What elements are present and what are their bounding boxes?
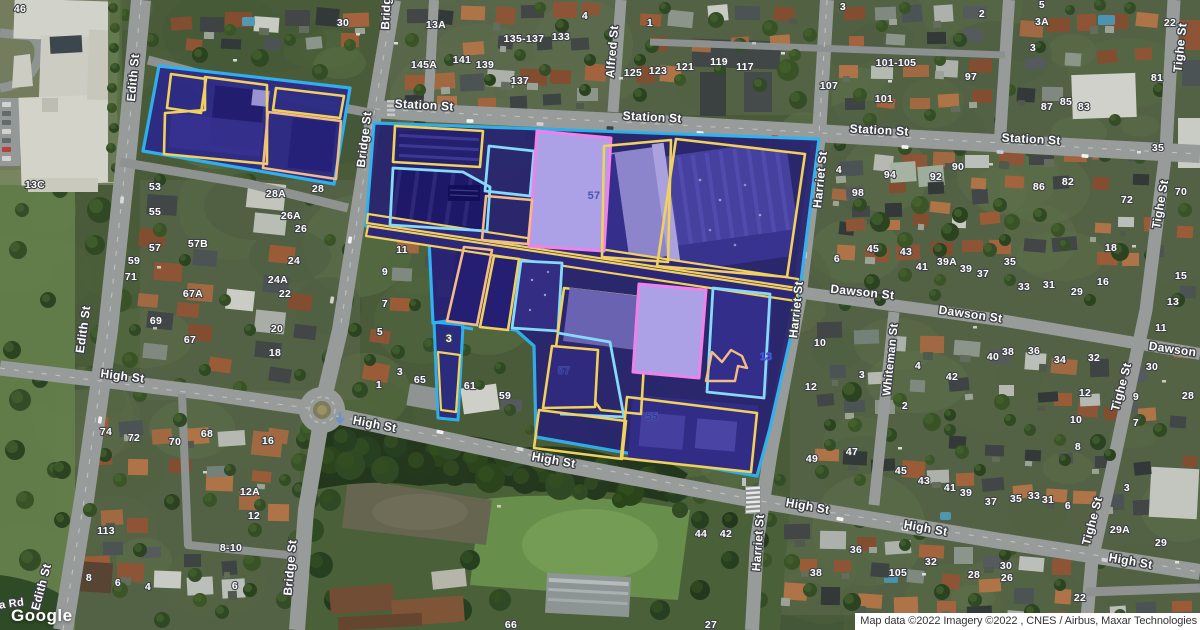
svg-text:7: 7: [382, 298, 388, 310]
svg-text:101: 101: [875, 93, 893, 105]
svg-text:44: 44: [695, 528, 707, 540]
svg-text:3: 3: [859, 369, 865, 381]
svg-text:28: 28: [1182, 390, 1194, 402]
svg-text:27: 27: [705, 619, 717, 630]
svg-text:6: 6: [1065, 500, 1071, 512]
svg-text:3: 3: [397, 366, 403, 378]
svg-text:3A: 3A: [1035, 16, 1049, 28]
svg-text:16: 16: [262, 435, 274, 447]
svg-text:2: 2: [979, 8, 985, 20]
svg-text:43: 43: [900, 246, 912, 258]
svg-text:39: 39: [960, 487, 972, 499]
svg-text:18: 18: [269, 347, 281, 359]
svg-text:92: 92: [930, 171, 942, 183]
svg-text:22: 22: [279, 288, 291, 300]
svg-text:117: 117: [736, 61, 754, 73]
svg-text:2: 2: [902, 400, 908, 412]
svg-text:53: 53: [149, 181, 161, 193]
svg-text:12: 12: [1079, 387, 1091, 399]
svg-text:6: 6: [115, 577, 121, 589]
svg-text:101-105: 101-105: [876, 57, 917, 69]
svg-text:133: 133: [552, 31, 570, 43]
svg-text:3: 3: [1124, 482, 1130, 494]
svg-text:1: 1: [647, 17, 653, 29]
svg-text:37: 37: [985, 496, 997, 508]
svg-text:57: 57: [588, 190, 601, 202]
svg-text:85: 85: [1060, 96, 1072, 108]
svg-text:37: 37: [977, 268, 989, 280]
svg-text:38: 38: [1002, 346, 1014, 358]
svg-text:30: 30: [337, 17, 349, 29]
svg-text:86: 86: [1033, 181, 1045, 193]
svg-text:68: 68: [201, 428, 213, 440]
svg-text:35: 35: [1152, 142, 1164, 154]
svg-text:135-137: 135-137: [504, 33, 545, 45]
svg-text:49: 49: [806, 453, 818, 465]
svg-text:55: 55: [149, 206, 161, 218]
svg-text:35: 35: [1004, 256, 1016, 268]
svg-text:5: 5: [1039, 0, 1045, 11]
svg-text:36: 36: [1028, 345, 1040, 357]
svg-text:28A: 28A: [266, 188, 286, 200]
svg-text:43: 43: [918, 475, 930, 487]
svg-text:119: 119: [710, 56, 728, 68]
svg-text:40: 40: [987, 351, 999, 363]
svg-text:1: 1: [376, 379, 382, 391]
svg-text:24: 24: [288, 255, 300, 267]
svg-text:107: 107: [820, 80, 838, 92]
svg-text:113: 113: [97, 525, 115, 537]
svg-text:39A: 39A: [937, 256, 957, 268]
svg-text:26: 26: [295, 223, 307, 235]
svg-text:105: 105: [889, 567, 907, 579]
svg-text:32: 32: [1088, 352, 1100, 364]
svg-text:123: 123: [649, 65, 667, 77]
svg-text:10: 10: [814, 337, 826, 349]
svg-text:72: 72: [1121, 194, 1133, 206]
svg-text:39: 39: [960, 263, 972, 275]
svg-text:45: 45: [867, 243, 879, 255]
svg-text:121: 121: [676, 61, 694, 73]
svg-text:141: 141: [453, 54, 471, 66]
svg-text:13: 13: [760, 351, 773, 363]
svg-text:33: 33: [1018, 281, 1030, 293]
svg-text:3: 3: [446, 333, 452, 345]
svg-text:32: 32: [925, 556, 937, 568]
svg-text:12: 12: [805, 381, 817, 393]
svg-text:33: 33: [1028, 490, 1040, 502]
svg-text:6: 6: [232, 580, 238, 592]
svg-text:29: 29: [1071, 286, 1083, 298]
svg-text:31: 31: [1043, 279, 1055, 291]
svg-text:13: 13: [1167, 296, 1179, 308]
svg-text:61: 61: [464, 380, 476, 392]
svg-text:57: 57: [149, 242, 161, 254]
svg-text:4: 4: [915, 360, 921, 372]
svg-text:67: 67: [184, 334, 196, 346]
svg-text:90: 90: [952, 161, 964, 173]
svg-text:13A: 13A: [426, 19, 446, 31]
svg-text:83: 83: [1078, 101, 1090, 113]
svg-text:98: 98: [852, 187, 864, 199]
svg-text:34: 34: [1054, 354, 1066, 366]
svg-text:41: 41: [916, 261, 928, 273]
svg-text:38: 38: [810, 567, 822, 579]
svg-text:35: 35: [1010, 493, 1022, 505]
svg-text:4: 4: [582, 10, 588, 22]
svg-text:12A: 12A: [240, 486, 260, 498]
svg-text:81: 81: [1151, 72, 1163, 84]
svg-text:26A: 26A: [281, 210, 301, 222]
svg-text:46: 46: [14, 3, 26, 15]
svg-text:71: 71: [125, 271, 137, 283]
svg-text:29: 29: [1155, 537, 1167, 549]
svg-text:3: 3: [840, 1, 846, 13]
svg-text:65: 65: [414, 374, 426, 386]
svg-text:15: 15: [1175, 270, 1187, 282]
svg-text:6: 6: [834, 253, 840, 265]
svg-text:70: 70: [1175, 186, 1187, 198]
svg-text:72: 72: [128, 432, 140, 444]
svg-text:22: 22: [1164, 17, 1176, 29]
svg-text:9: 9: [382, 266, 388, 278]
svg-text:29A: 29A: [1110, 524, 1130, 536]
svg-text:13C: 13C: [25, 179, 45, 191]
svg-text:5: 5: [377, 326, 383, 338]
svg-text:125: 125: [624, 67, 642, 79]
svg-text:Bridge: Bridge: [378, 0, 394, 30]
svg-text:145A: 145A: [411, 59, 437, 71]
svg-text:69: 69: [150, 315, 162, 327]
svg-text:87: 87: [1041, 101, 1053, 113]
svg-text:8-10: 8-10: [220, 542, 242, 554]
svg-text:47: 47: [846, 446, 858, 458]
svg-text:28: 28: [312, 183, 324, 195]
svg-text:7: 7: [1133, 417, 1139, 429]
svg-text:28: 28: [968, 569, 980, 581]
svg-text:3: 3: [1030, 42, 1036, 54]
svg-text:30: 30: [1000, 560, 1012, 572]
svg-text:139: 139: [476, 59, 494, 71]
svg-text:16: 16: [1097, 276, 1109, 288]
svg-text:9: 9: [1133, 391, 1139, 403]
svg-text:66: 66: [505, 619, 517, 630]
svg-text:137: 137: [511, 75, 529, 87]
svg-text:8: 8: [86, 572, 92, 584]
svg-text:11: 11: [396, 244, 408, 256]
svg-text:10: 10: [1070, 414, 1082, 426]
svg-text:4: 4: [836, 164, 842, 176]
svg-text:67A: 67A: [183, 288, 203, 300]
svg-text:36: 36: [850, 544, 862, 556]
svg-text:22: 22: [1074, 592, 1086, 604]
svg-text:18: 18: [1105, 242, 1117, 254]
svg-text:42: 42: [720, 528, 732, 540]
svg-text:59: 59: [499, 390, 511, 402]
svg-text:97: 97: [965, 71, 977, 83]
svg-text:26: 26: [1001, 572, 1013, 584]
svg-text:55: 55: [646, 411, 659, 423]
svg-text:20: 20: [271, 323, 283, 335]
svg-text:30: 30: [1146, 361, 1158, 373]
svg-text:41: 41: [944, 482, 956, 494]
svg-text:8: 8: [1075, 441, 1081, 453]
svg-text:11: 11: [1155, 322, 1167, 334]
svg-text:31: 31: [1042, 494, 1054, 506]
svg-text:24A: 24A: [268, 274, 288, 286]
svg-text:94: 94: [884, 169, 896, 181]
svg-text:57B: 57B: [188, 238, 208, 250]
svg-text:12: 12: [248, 510, 260, 522]
svg-text:59: 59: [128, 255, 140, 267]
svg-text:74: 74: [100, 426, 112, 438]
svg-text:42: 42: [946, 371, 958, 383]
svg-text:57: 57: [558, 365, 571, 377]
svg-text:82: 82: [1062, 176, 1074, 188]
svg-text:45: 45: [895, 465, 907, 477]
svg-text:4: 4: [145, 581, 151, 593]
svg-text:70: 70: [169, 436, 181, 448]
